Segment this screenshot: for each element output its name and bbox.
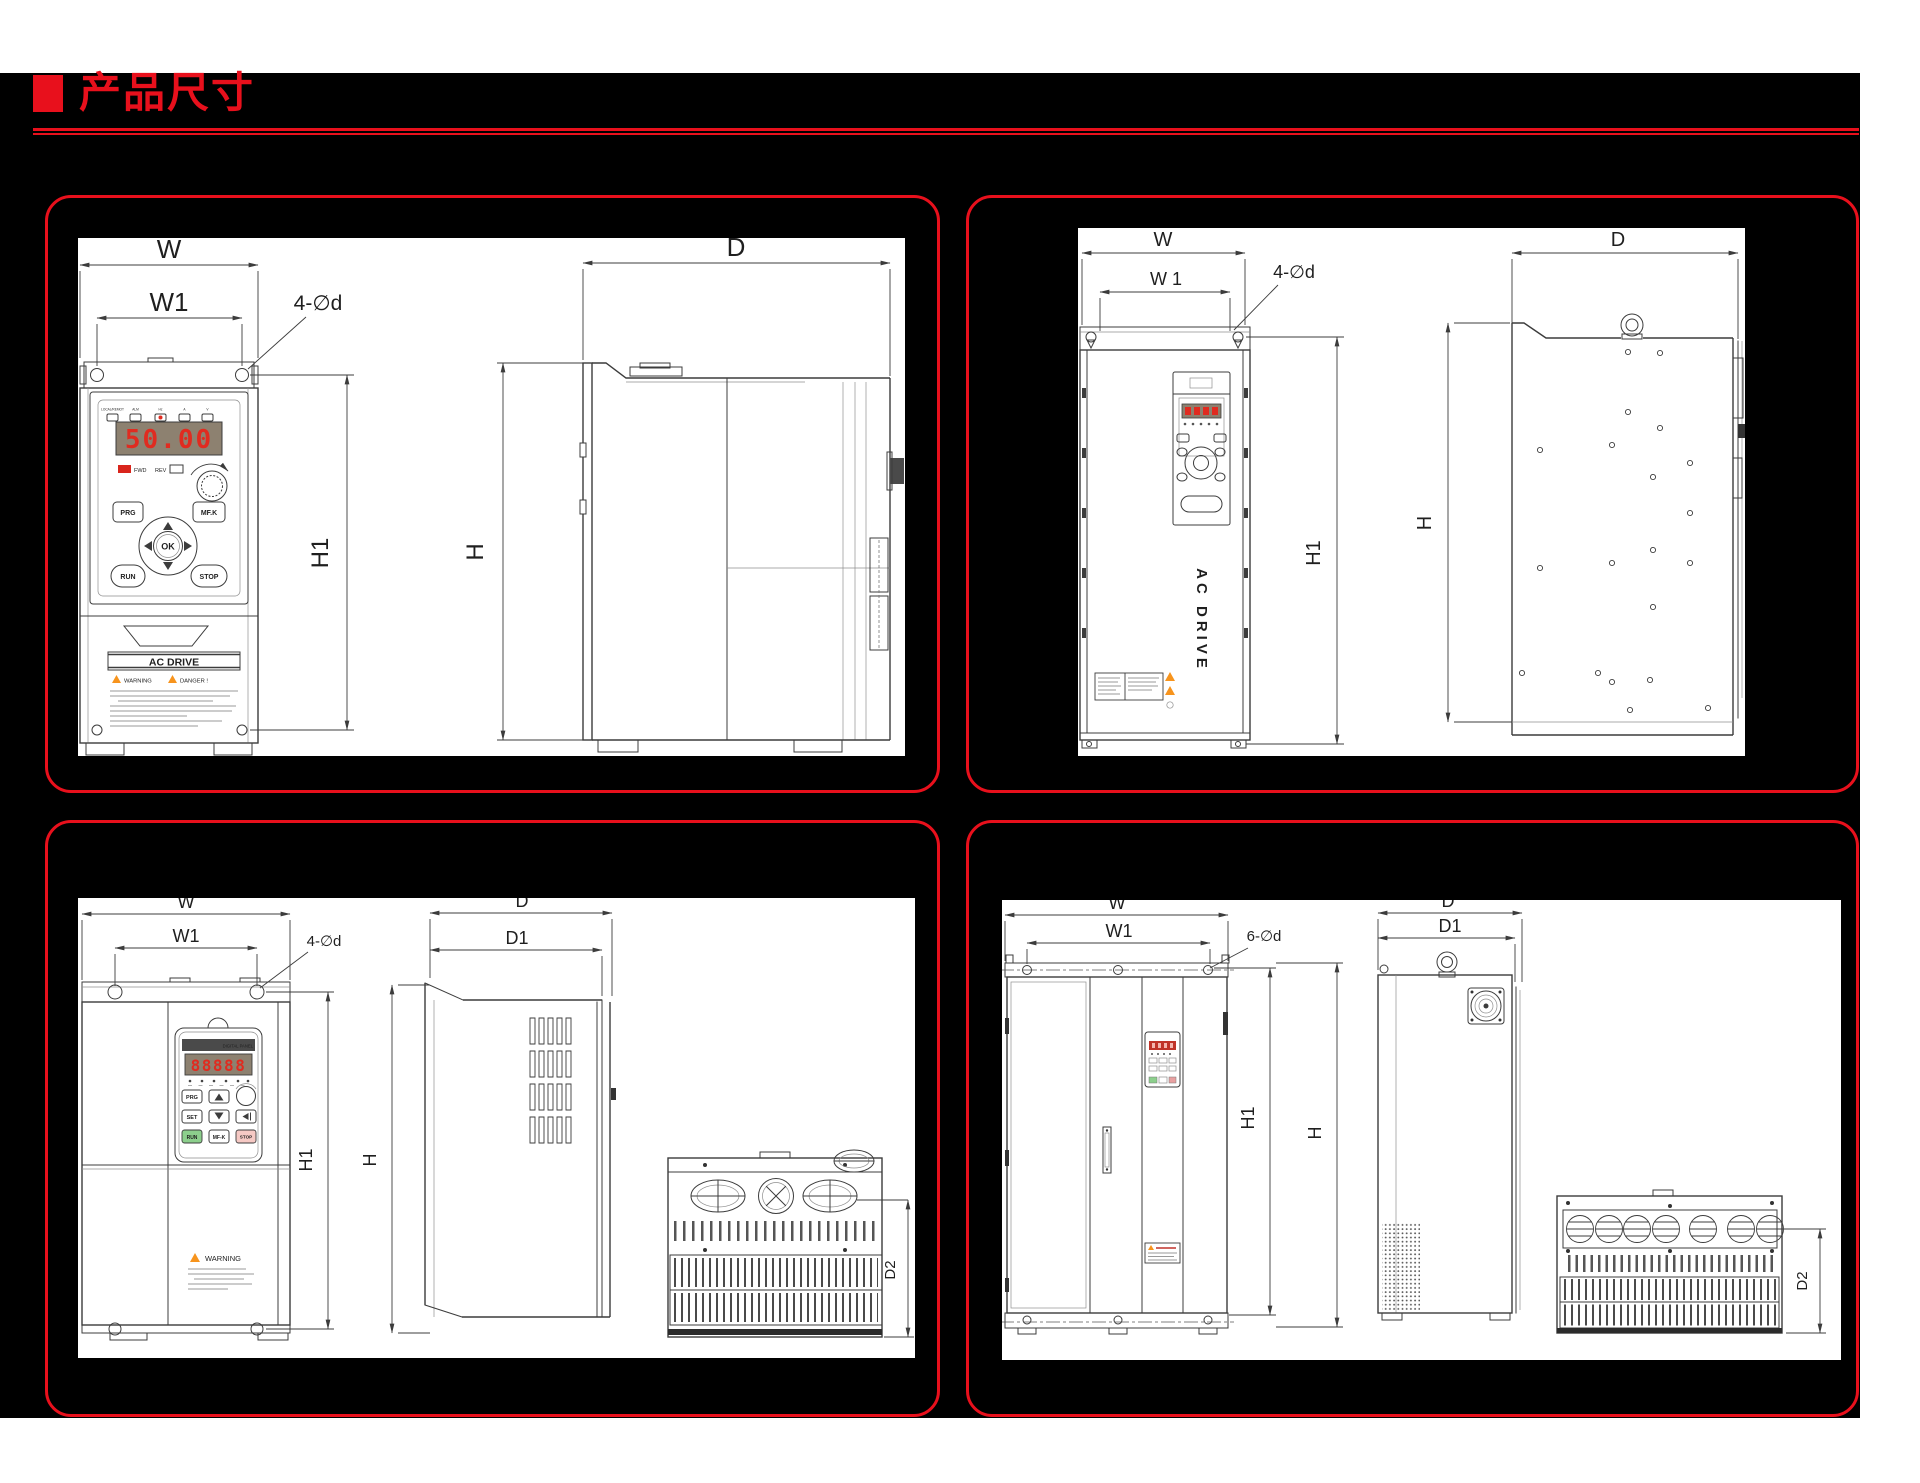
section-header: 产品尺寸 — [33, 72, 255, 114]
down-arrow-icon — [215, 1113, 224, 1120]
dim-label-d: D — [1442, 900, 1455, 911]
prg-button: PRG — [186, 1095, 198, 1101]
warning-sticker — [1095, 672, 1175, 708]
dim-label-h: H — [1305, 1127, 1325, 1140]
dim-label-w: W — [1109, 900, 1126, 913]
drawing-tall-drive: W W 1 4-∅d — [1078, 228, 1745, 756]
fan-openings — [1567, 1216, 1784, 1243]
fan-grille-icon — [1468, 988, 1504, 1024]
keypad-header: DIGITAL PANEL — [223, 1044, 254, 1049]
run-button: RUN — [120, 574, 135, 581]
warning-triangle-icon — [112, 675, 121, 683]
led-label-v: V — [206, 408, 209, 412]
side-view: D D1 — [425, 898, 616, 1317]
display-value: 50.00 — [125, 425, 213, 455]
bottom-view: D2 — [668, 1150, 914, 1337]
ok-dpad: OK — [139, 517, 197, 575]
led-label-alm: ALM — [132, 408, 139, 412]
dim-label-d: D — [516, 898, 529, 911]
warning-sticker — [1145, 1243, 1180, 1263]
mesh-vent — [1382, 1222, 1420, 1310]
dim-label-h1: H1 — [307, 538, 334, 569]
led-label-a: A — [183, 408, 186, 412]
front-view: W W1 4-∅d DIGITAL PANEL 88888 — [82, 898, 430, 1340]
screw-holes — [1519, 349, 1710, 712]
knockout-circle — [759, 1179, 794, 1214]
drawing-cabinet-drive: W W1 6-∅d — [1002, 900, 1841, 1360]
dim-label-h: H — [1414, 516, 1436, 530]
dim-label-w: W — [178, 898, 195, 912]
dim-label-h: H — [462, 543, 489, 560]
run-button: RUN — [187, 1135, 198, 1141]
dim-label-w1: W1 — [1106, 921, 1133, 941]
dim-label-w1: W1 — [173, 926, 200, 946]
warning-label: WARNING — [205, 1254, 241, 1263]
dim-label-d: D — [727, 238, 746, 262]
front-view: W W1 6-∅d — [1002, 900, 1343, 1334]
potentiometer-knob-icon — [191, 464, 228, 501]
cable-gland-oval — [691, 1180, 745, 1212]
cable-gland-oval-small — [834, 1150, 874, 1172]
warning-label: WARNING — [124, 679, 152, 685]
dim-label-d1: D1 — [505, 928, 528, 948]
brand-label-plate: AC DRIVE — [108, 652, 240, 670]
lifting-eyebolt-icon — [1621, 314, 1643, 339]
mini-keypad — [1145, 1032, 1180, 1087]
shift-arrow-icon — [243, 1113, 249, 1120]
drawing-small-drive: W W1 4-∅d LOCAL/REMOT ALM Hz A V — [78, 238, 905, 756]
up-arrow-icon — [215, 1094, 224, 1101]
side-view: D H — [462, 238, 904, 752]
led-label-hz: Hz — [159, 408, 163, 412]
cable-gland-oval — [803, 1180, 857, 1212]
dim-label-h1: H1 — [1238, 1106, 1258, 1129]
set-button: SET — [187, 1115, 198, 1121]
dim-label-d2: D2 — [882, 1260, 899, 1279]
warning-triangle-icon — [1165, 686, 1175, 695]
led-label-local-remot: LOCAL/REMOT — [101, 408, 124, 412]
ok-button: OK — [161, 542, 175, 552]
rev-indicator-label: REV — [155, 468, 167, 474]
stop-button: STOP — [200, 574, 219, 581]
mfk-button: MF.K — [201, 510, 217, 517]
bottom-view: D2 — [1557, 1190, 1826, 1333]
display-value: 88888 — [191, 1056, 247, 1075]
keypad: LOCAL/REMOT ALM Hz A V 50.00 FWD REV — [90, 392, 248, 604]
keypad — [1173, 372, 1230, 525]
dim-label-w1: W 1 — [1150, 269, 1182, 289]
side-view: D D1 — [1378, 900, 1522, 1320]
header-divider-thick — [33, 128, 1859, 131]
flange-louvers — [1082, 388, 1248, 638]
dim-label-w: W — [157, 238, 182, 264]
dim-label-w: W — [1154, 229, 1173, 251]
front-view: W W1 4-∅d LOCAL/REMOT ALM Hz A V — [80, 238, 354, 755]
vent-slots — [530, 1018, 571, 1143]
dim-label-w1: W1 — [150, 287, 189, 317]
stop-button: STOP — [240, 1135, 252, 1140]
danger-label: DANGER ! — [180, 679, 208, 685]
door-handle — [1103, 1127, 1111, 1173]
dim-label-holes: 4-∅d — [307, 933, 342, 950]
fine-print-lines — [188, 1269, 254, 1289]
side-view: D H — [1414, 229, 1745, 735]
product-dimensions-page: 产品尺寸 W W1 4-∅d LOCAL/REMOT — [0, 0, 1920, 1483]
keypad: DIGITAL PANEL 88888 PRG SET — [175, 1018, 262, 1162]
dim-label-d2: D2 — [1794, 1271, 1811, 1290]
brand-label: AC DRIVE — [149, 657, 199, 669]
brand-label-vertical: AC DRIVE — [1193, 568, 1210, 672]
dim-label-d: D — [1611, 229, 1625, 251]
dim-label-holes: 4-∅d — [1273, 262, 1315, 282]
fwd-indicator-label: FWD — [134, 468, 147, 474]
dim-label-holes: 6-∅d — [1247, 928, 1282, 945]
section-marker-icon — [33, 75, 63, 112]
dim-label-d1: D1 — [1438, 916, 1461, 936]
dim-label-h: H — [360, 1154, 380, 1167]
keypad-knob-icon — [236, 1084, 256, 1106]
warning-triangle-icon — [1165, 672, 1175, 681]
header-divider-thin — [33, 133, 1859, 135]
fine-print-lines — [110, 691, 238, 726]
page-title: 产品尺寸 — [79, 72, 255, 114]
prg-button: PRG — [120, 510, 136, 517]
dim-label-holes: 4-∅d — [294, 292, 343, 315]
lifting-eyebolt-icon — [1437, 952, 1457, 977]
drawing-mid-drive: W W1 4-∅d DIGITAL PANEL 88888 — [78, 898, 915, 1358]
dim-label-h1: H1 — [1303, 540, 1325, 566]
mfk-button: MF-K — [213, 1135, 226, 1141]
dim-label-h1: H1 — [296, 1148, 316, 1171]
warning-triangle-icon — [190, 1253, 200, 1262]
front-view: W W 1 4-∅d — [1080, 229, 1344, 748]
danger-triangle-icon — [168, 675, 177, 683]
